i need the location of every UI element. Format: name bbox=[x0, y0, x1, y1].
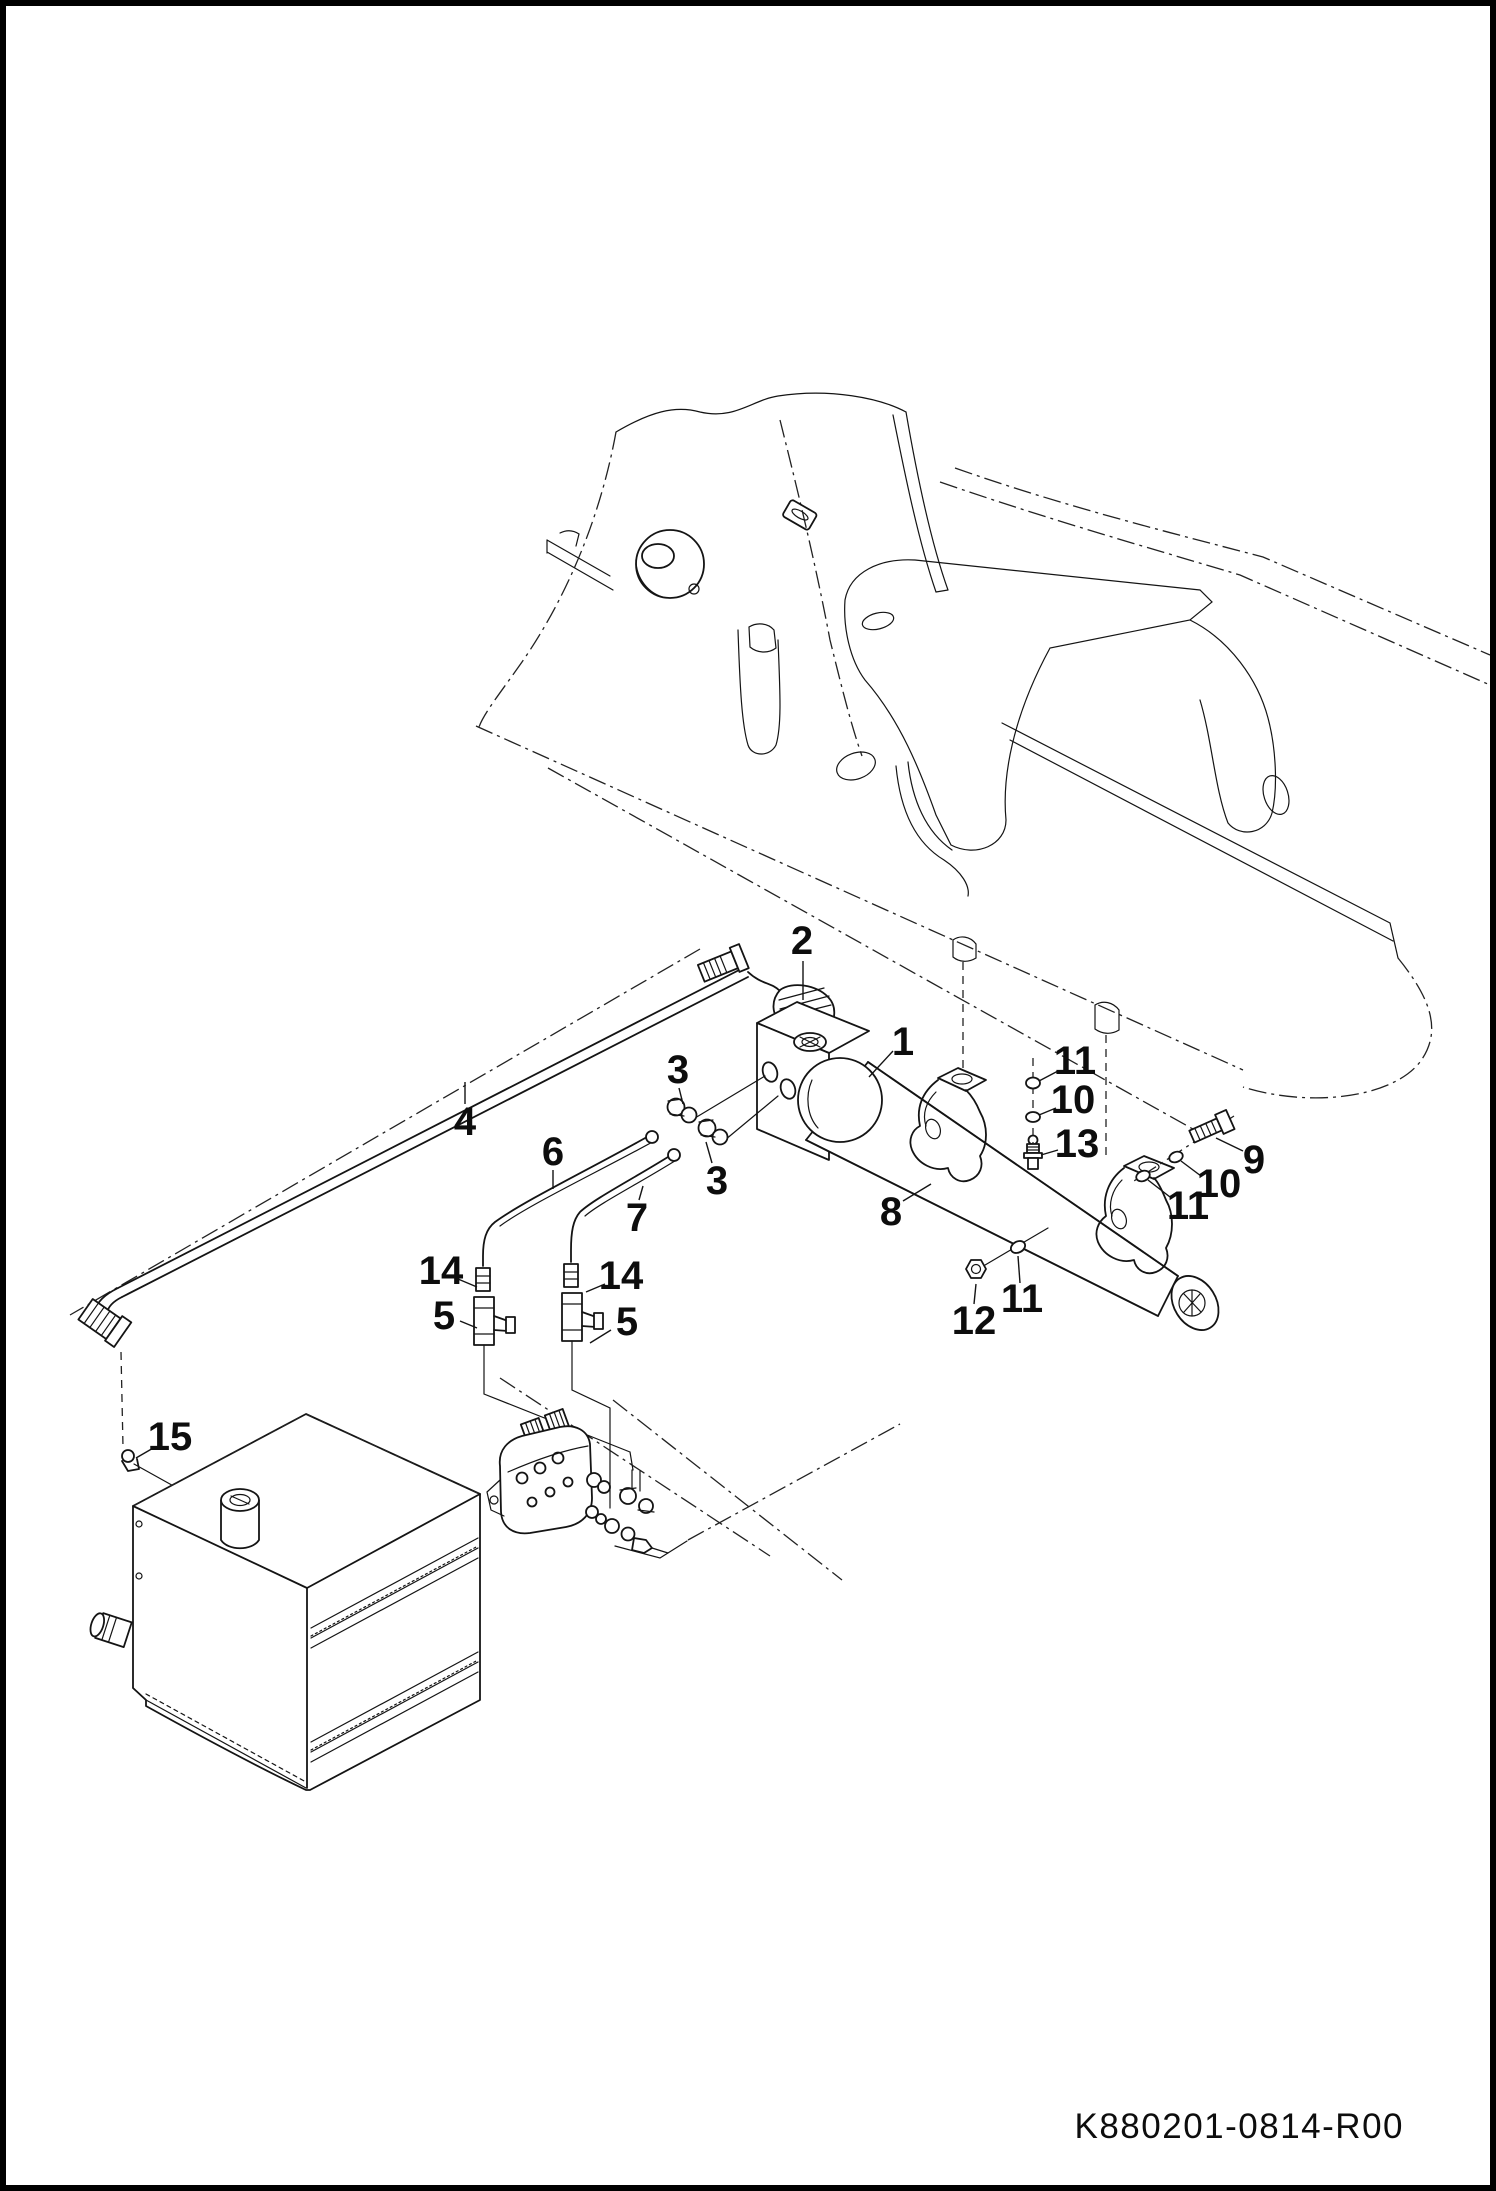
callout-label-11: 11 bbox=[1001, 1277, 1043, 1321]
callout-label-5: 5 bbox=[616, 1300, 638, 1344]
callout-label-4: 4 bbox=[454, 1100, 477, 1144]
control-valve bbox=[487, 1409, 668, 1553]
tee-5-right bbox=[562, 1293, 603, 1341]
grease-fitting-13 bbox=[1024, 1136, 1042, 1170]
callout-label-3: 3 bbox=[667, 1048, 689, 1092]
callout-label-10: 10 bbox=[1051, 1078, 1096, 1122]
callout-label-9: 9 bbox=[1243, 1138, 1265, 1182]
callout-leader bbox=[1216, 1138, 1243, 1151]
page-border bbox=[3, 3, 1493, 2188]
callout-label-12: 12 bbox=[952, 1299, 997, 1343]
callout-label-6: 6 bbox=[542, 1130, 564, 1174]
callout-leader bbox=[590, 1330, 611, 1343]
callout-label-3: 3 bbox=[706, 1159, 728, 1203]
tube-nut-14-left bbox=[476, 1268, 490, 1291]
connector-3-lower bbox=[699, 1120, 728, 1145]
callout-label-8: 8 bbox=[880, 1190, 902, 1234]
callout-label-11: 11 bbox=[1054, 1039, 1096, 1083]
drawing-number: K880201-0814-R00 bbox=[1074, 2107, 1404, 2146]
callout-label-13: 13 bbox=[1055, 1122, 1100, 1166]
diagram-sheet: 1233455678910111110131112141415 K880201-… bbox=[0, 0, 1496, 2191]
callout-label-14: 14 bbox=[419, 1249, 464, 1293]
blade-frame-phantom bbox=[70, 393, 1490, 1580]
valve-fittings bbox=[586, 1470, 668, 1553]
callout-label-14: 14 bbox=[599, 1254, 644, 1298]
callout-label-2: 2 bbox=[791, 919, 813, 963]
tee-5-left bbox=[474, 1297, 515, 1345]
tank-side-fitting bbox=[88, 1611, 132, 1647]
callout-label-5: 5 bbox=[433, 1294, 455, 1338]
callout-layer: 1233455678910111110131112141415 bbox=[136, 919, 1265, 1459]
callout-label-1: 1 bbox=[892, 1020, 914, 1064]
callout-label-15: 15 bbox=[148, 1415, 193, 1459]
filler-cap bbox=[221, 1489, 259, 1548]
hardware-13-group bbox=[1024, 1058, 1042, 1170]
callout-label-7: 7 bbox=[626, 1196, 648, 1240]
parts-diagram: 1233455678910111110131112141415 K880201-… bbox=[0, 0, 1496, 2191]
callout-label-11: 11 bbox=[1167, 1184, 1209, 1228]
tube-nut-14-right bbox=[564, 1264, 578, 1287]
